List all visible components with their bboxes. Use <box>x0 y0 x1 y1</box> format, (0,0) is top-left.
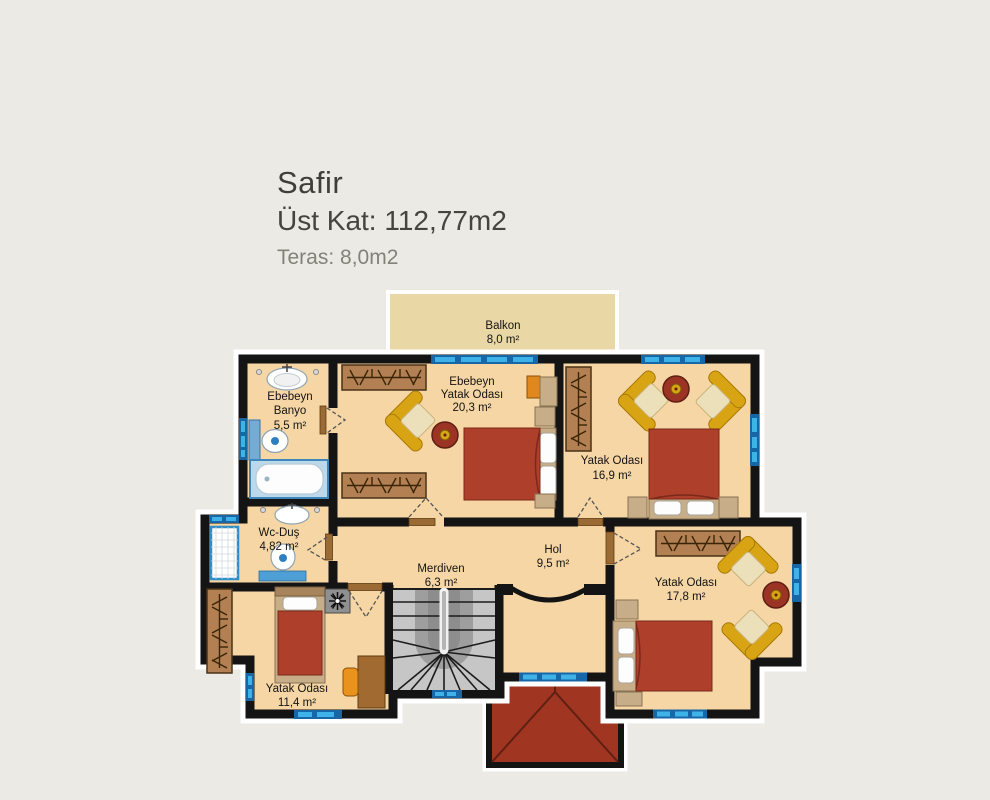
label-yatak-11: Yatak Odası <box>266 683 328 695</box>
label-yatak-17-area: 17,8 m² <box>667 591 706 603</box>
double-bed-icon <box>464 428 556 500</box>
window <box>653 710 707 719</box>
nightstand-icon <box>616 692 642 706</box>
wall-dot <box>315 508 320 513</box>
desk-chair-icon <box>343 668 358 696</box>
wardrobe-icon <box>207 589 232 673</box>
label-yatak-16: Yatak Odası <box>581 455 643 467</box>
floor-plan-page: Safir Üst Kat: 112,77m2 Teras: 8,0m2 <box>0 0 990 800</box>
window <box>209 515 239 523</box>
label-ebebeyn-yatak-1: Ebebeyn <box>449 376 494 388</box>
label-balkon: Balkon <box>485 320 520 332</box>
plant-icon <box>325 589 350 613</box>
window <box>519 673 587 682</box>
label-yatak-11-area: 11,4 m² <box>278 697 316 709</box>
window <box>294 710 342 719</box>
label-ebebeyn-yatak-area: 20,3 m² <box>453 402 492 414</box>
window <box>432 690 462 698</box>
label-ebebeyn-banyo-1: Ebebeyn <box>267 391 312 403</box>
window <box>750 414 759 466</box>
nightstand-icon <box>616 600 638 619</box>
nightstand-icon <box>628 497 647 518</box>
window <box>792 564 801 602</box>
bathtub-icon <box>250 460 328 498</box>
round-table-icon <box>763 582 789 608</box>
wall-dot <box>314 370 319 375</box>
staircase <box>393 588 495 690</box>
round-table-icon <box>432 422 458 448</box>
window <box>246 673 254 701</box>
label-hol-area: 9,5 m² <box>537 558 570 570</box>
shower-icon <box>211 527 238 579</box>
desk-icon <box>358 656 385 708</box>
single-bed-icon <box>275 587 325 683</box>
door-leaf <box>320 406 326 434</box>
door-leaf <box>606 532 614 564</box>
label-balkon-area: 8,0 m² <box>487 334 520 346</box>
wardrobe-icon <box>342 365 426 390</box>
label-merdiven-area: 6,3 m² <box>425 577 458 589</box>
label-ebebeyn-banyo-2: Banyo <box>274 405 307 417</box>
label-yatak-16-area: 16,9 m² <box>593 470 632 482</box>
label-yatak-17: Yatak Odası <box>655 577 717 589</box>
nightstand-icon <box>535 407 555 426</box>
floor-plan-drawing: Balkon 8,0 m² Ebebeyn Banyo 5,5 m² Ebebe… <box>0 0 990 800</box>
wall-dot <box>261 508 266 513</box>
wardrobe-icon <box>342 473 426 498</box>
wall-dot <box>257 370 262 375</box>
window <box>239 418 247 460</box>
wardrobe-icon <box>566 367 591 451</box>
label-merdiven: Merdiven <box>417 563 464 575</box>
label-wc-dus-area: 4,82 m² <box>260 541 299 553</box>
bath-mat <box>259 571 306 581</box>
balcony-slider-window <box>431 355 538 364</box>
wardrobe-icon <box>656 531 740 556</box>
cabinet-icon <box>540 377 557 406</box>
double-bed-icon <box>613 621 712 691</box>
double-bed-icon <box>649 429 719 519</box>
round-table-icon <box>663 376 689 402</box>
dresser-icon <box>527 376 540 398</box>
door-leaf <box>409 519 435 526</box>
nightstand-icon <box>535 494 555 508</box>
door-leaf <box>578 519 603 526</box>
door-leaf <box>348 584 382 591</box>
label-ebebeyn-banyo-area: 5,5 m² <box>274 420 307 432</box>
label-wc-dus: Wc-Duş <box>259 527 300 539</box>
window <box>641 355 705 364</box>
nightstand-icon <box>719 497 738 518</box>
label-hol: Hol <box>544 544 561 556</box>
label-ebebeyn-yatak-2: Yatak Odası <box>441 389 503 401</box>
